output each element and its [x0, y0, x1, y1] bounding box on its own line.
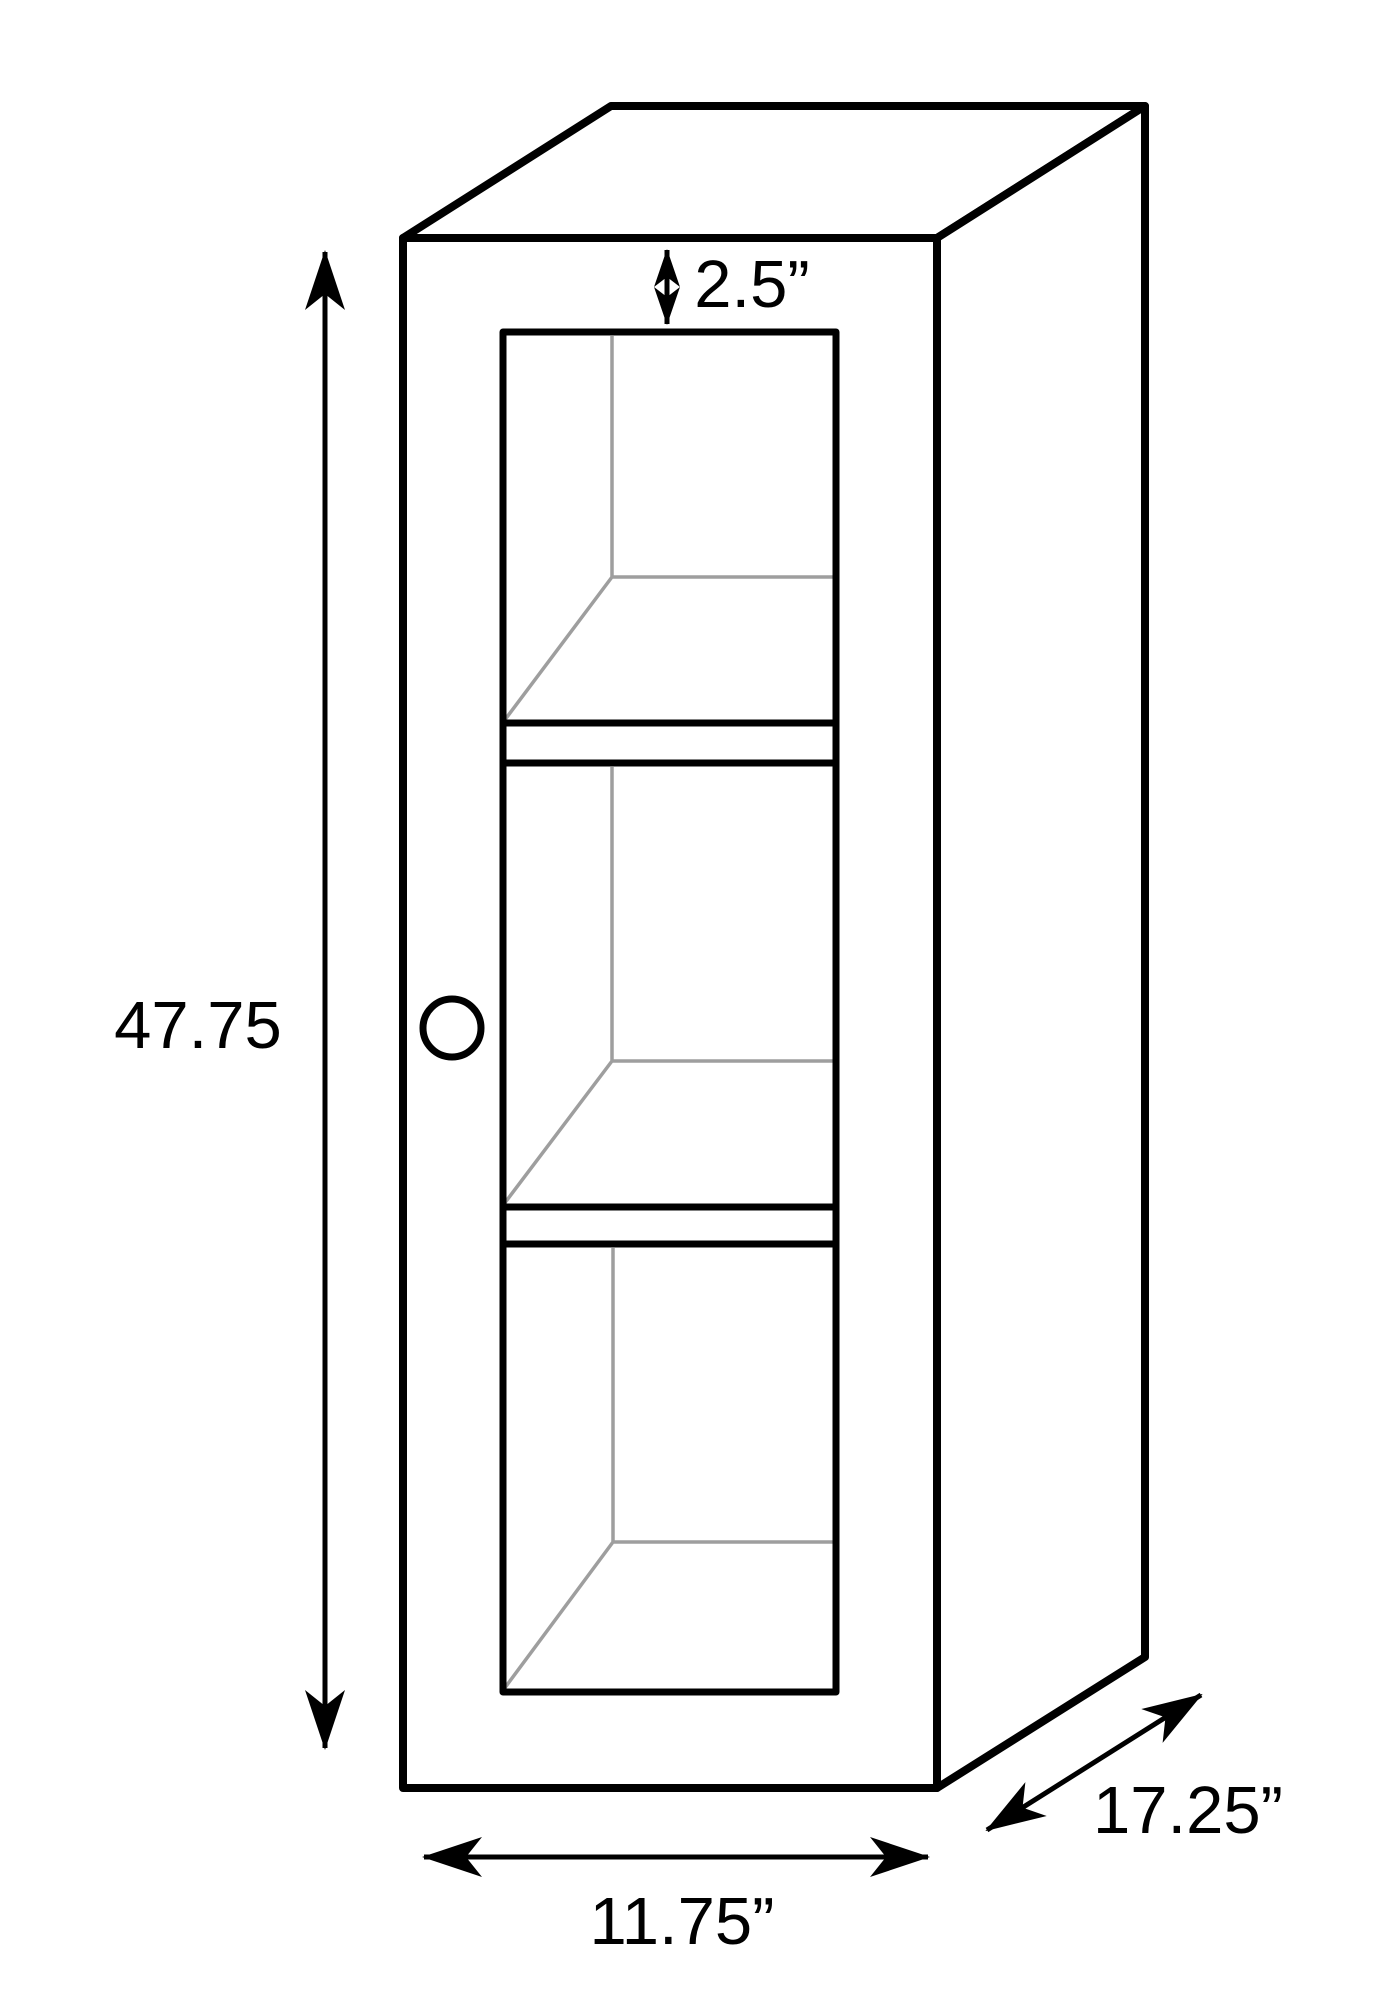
cabinet-front-face [403, 238, 937, 1788]
width-dimension-label: 11.75” [589, 1884, 774, 1959]
cabinet-side-face [937, 106, 1145, 1788]
depth-dimension-label: 17.25” [1093, 1773, 1283, 1848]
height-dimension-label: 47.75 [114, 988, 282, 1063]
dimension-diagram-page: 47.75 2.5” 11.75” 17.25” [0, 0, 1382, 2000]
cabinet-body [403, 106, 1145, 1788]
top-inset-dimension-label: 2.5” [694, 247, 809, 322]
cabinet-dimension-drawing: 47.75 2.5” 11.75” 17.25” [0, 0, 1382, 2000]
